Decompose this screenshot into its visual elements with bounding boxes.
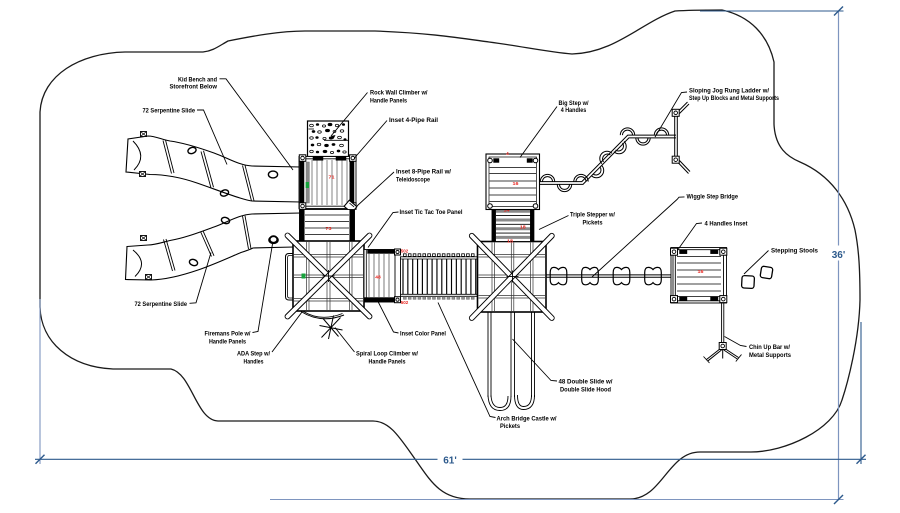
svg-text:4 Handles: 4 Handles	[561, 107, 587, 114]
svg-text:Pickets: Pickets	[500, 423, 520, 430]
svg-text:16: 16	[513, 181, 520, 186]
svg-text:Handle Panels: Handle Panels	[369, 359, 406, 366]
svg-text:Firemans Pole w/: Firemans Pole w/	[205, 331, 251, 338]
svg-text:Storefront Below: Storefront Below	[170, 83, 218, 90]
svg-text:Chin Up Bar w/: Chin Up Bar w/	[749, 344, 790, 351]
svg-text:16: 16	[698, 269, 705, 274]
svg-text:Inset 8-Pipe Rail w/: Inset 8-Pipe Rail w/	[396, 169, 451, 176]
svg-text:Kid Bench and: Kid Bench and	[178, 76, 217, 83]
svg-text:Inset Tic Tac Toe Panel: Inset Tic Tac Toe Panel	[400, 209, 463, 216]
svg-text:Sloping Jog Rung Ladder w/: Sloping Jog Rung Ladder w/	[689, 87, 769, 94]
svg-text:Rock Wall Climber w/: Rock Wall Climber w/	[370, 90, 428, 97]
svg-text:Big Step w/: Big Step w/	[559, 100, 589, 107]
svg-text:72 Serpentine Slide: 72 Serpentine Slide	[135, 301, 188, 308]
svg-text:18: 18	[507, 239, 514, 244]
svg-text:502: 502	[401, 249, 409, 254]
svg-text:61': 61'	[443, 456, 457, 467]
svg-text:Pickets: Pickets	[583, 220, 603, 227]
svg-text:ADA Step w/: ADA Step w/	[237, 351, 270, 358]
svg-text:Wiggle Step Bridge: Wiggle Step Bridge	[687, 194, 739, 201]
svg-text:18: 18	[520, 224, 527, 229]
svg-text:48: 48	[375, 274, 381, 279]
svg-text:Handle Panels: Handle Panels	[209, 339, 246, 346]
svg-text:73: 73	[326, 226, 333, 231]
svg-text:4 Handles Inset: 4 Handles Inset	[705, 220, 749, 227]
svg-text:Step Up Blocks and Metal Suppo: Step Up Blocks and Metal Supports	[689, 95, 779, 102]
svg-text:36': 36'	[832, 250, 846, 261]
svg-text:Handle Panels: Handle Panels	[370, 97, 407, 104]
svg-text:48 Double Slide w/: 48 Double Slide w/	[559, 379, 613, 386]
svg-text:Double Slide Hood: Double Slide Hood	[560, 387, 611, 394]
svg-text:4: 4	[506, 151, 509, 156]
svg-text:Teleidoscope: Teleidoscope	[396, 176, 430, 183]
svg-text:Arch Bridge Castle w/: Arch Bridge Castle w/	[497, 416, 557, 423]
svg-text:Triple Stepper w/: Triple Stepper w/	[570, 212, 615, 219]
svg-text:Inset Color Panel: Inset Color Panel	[400, 331, 446, 338]
svg-text:Inset 4-Pipe Rail: Inset 4-Pipe Rail	[389, 117, 438, 124]
svg-text:Handles: Handles	[244, 359, 264, 366]
svg-text:Spiral Loop Climber w/: Spiral Loop Climber w/	[356, 351, 418, 358]
svg-text:72 Serpentine Slide: 72 Serpentine Slide	[143, 107, 196, 114]
svg-text:502: 502	[401, 300, 409, 305]
svg-text:71: 71	[329, 175, 336, 180]
svg-text:Stepping Stools: Stepping Stools	[771, 248, 818, 255]
svg-text:Metal Supports: Metal Supports	[749, 352, 791, 359]
